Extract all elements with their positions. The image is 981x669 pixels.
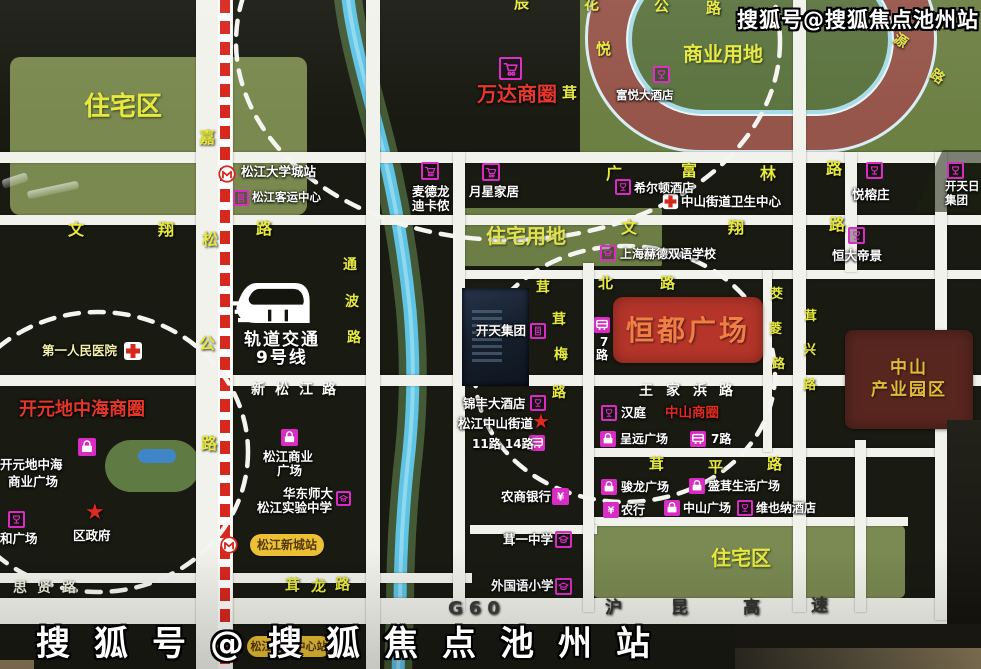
road-label-rongmei-road-1: 茸 xyxy=(552,313,566,327)
road-label-xinsongjiang-road-0: 新 xyxy=(251,383,265,397)
zone-label-residential-bottom: 住宅区 xyxy=(711,548,771,568)
poi-label-metro-decathlon-line1: 迪卡侬 xyxy=(412,200,450,213)
poi-label-rural-commercial-bank: 农商银行 xyxy=(501,491,551,504)
poi-label-bus-route-7-chengyuan: 7路 xyxy=(711,433,731,445)
road-label-jiasong-highway-2: 公 xyxy=(199,336,215,352)
poi-label-songjiang-university-town-station: 松江大学城站 xyxy=(241,166,316,179)
road-label-chenhua-highway-0: 辰 xyxy=(514,0,529,11)
svg-text:¥: ¥ xyxy=(608,506,615,517)
project-label-zhongshan-industrial-park-line0: 中山 xyxy=(890,358,928,379)
poi-bus-route-7-hengdu-bus-icon xyxy=(594,317,610,333)
road-label-jiasong-highway-3: 路 xyxy=(201,436,217,452)
road-horizontal-4 xyxy=(583,448,981,457)
poi-label-zhongshan-street-health-center: 中山街道卫生中心 xyxy=(681,196,781,209)
poi-label-songjiang-bus-terminal: 松江客运中心 xyxy=(252,192,321,204)
road-label-ronglong-road-0: 茸 xyxy=(285,578,300,593)
road-label-rongxing-road-2: 路 xyxy=(803,379,816,392)
road-label-jiasong-highway-0: 嘉 xyxy=(199,130,215,146)
road-label-rongxing-road-0: 茸 xyxy=(804,310,817,323)
poi-district-government-star-icon: ★ xyxy=(85,502,105,524)
poi-label-jinfeng-hotel: 锦丰大酒店 xyxy=(463,398,526,411)
poi-zhongshan-street-health-center-red-cross-icon xyxy=(662,193,679,210)
watermark-top-right: 搜狐号@搜狐焦点池州站 xyxy=(737,10,979,31)
poi-label-songjiang-commercial-plaza: 松江商业 xyxy=(263,451,313,464)
poi-label-first-peoples-hospital: 第一人民医院 xyxy=(42,345,117,358)
road-label-guangfulin-road-3: 路 xyxy=(826,161,842,177)
station-pill-songjiang-xincheng-station: 松江新城站 xyxy=(250,534,324,556)
road-label-jiaoling-road-2: 路 xyxy=(772,358,785,371)
poi-label-kaiyuan-commercial-plaza-line1: 商业广场 xyxy=(8,476,58,489)
poi-label-foreign-language-primary-school: 外国语小学 xyxy=(491,580,554,593)
road-label-tongbo-road-0: 通 xyxy=(343,258,357,272)
road-label-rongmei-road-3: 路 xyxy=(552,386,566,400)
road-label-wenxiang-road-west-0: 文 xyxy=(68,222,84,238)
poi-label-songjiang-commercial-plaza-line1: 广场 xyxy=(277,465,302,478)
road-label-guangfulin-road-2: 林 xyxy=(760,166,776,182)
road-label-tongbo-road-2: 路 xyxy=(347,331,361,345)
poi-label-bus-route-7-hengdu-line1: 路 xyxy=(596,349,608,361)
road-label-chenhua-highway-2: 公 xyxy=(654,0,669,14)
road-label-xinsongjiang-road-3: 路 xyxy=(322,383,336,397)
poi-hengda-dijing-cup-icon xyxy=(848,227,865,244)
road-label-hukun-expressway-3: 速 xyxy=(811,598,828,615)
road-label-chenhua-highway-3: 路 xyxy=(706,1,721,16)
kaitian-photo-detail xyxy=(472,310,502,366)
poi-bus-route-7-chengyuan-bus-icon xyxy=(690,431,706,447)
train-icon xyxy=(231,278,315,328)
zone-pond-lake xyxy=(138,449,176,463)
road-label-rongyue-road-1: 茸 xyxy=(562,86,577,101)
poi-wanda-business-circle-cart-icon xyxy=(499,57,522,80)
rail-line9-label-line2: 9号线 xyxy=(256,350,308,367)
poi-label-rongyi-middle-school: 茸一中学 xyxy=(503,534,553,547)
songjiang-location-map: 搜狐号@搜狐焦点池州站 搜狐号@搜狐焦点池州站 住宅区住宅区住宅用地住宅区商业用… xyxy=(0,0,981,669)
road-label-wangjiabang-road-0: 王 xyxy=(639,384,653,398)
road-vertical-7 xyxy=(855,440,866,612)
road-label-xinsongjiang-road-2: 江 xyxy=(299,383,313,397)
poi-kaitianri-group-cup-icon xyxy=(947,162,964,179)
road-label-wenxiang-road-west-1: 翔 xyxy=(158,222,174,238)
road-label-rongmei-road-2: 梅 xyxy=(554,348,568,362)
project-zhongshan-industrial-park: 中山产业园区 xyxy=(845,330,973,429)
poi-hilton-hotel-cup-icon xyxy=(615,179,631,195)
poi-label-hengda-dijing: 恒大帝景 xyxy=(832,250,882,263)
poi-fuyue-hotel-cup-icon xyxy=(653,66,670,83)
poi-zhongshan-plaza-bag-icon xyxy=(664,500,680,516)
poi-label-junlong-plaza: 骏龙广场 xyxy=(621,481,669,493)
poi-label-zhongshan-business-circle-label: 中山商圈 xyxy=(665,407,719,421)
poi-metro-decathlon-cart-icon xyxy=(421,162,439,180)
poi-chengyuan-plaza-bag-icon xyxy=(600,431,616,447)
dark-strip-bottom-right xyxy=(735,624,981,650)
poi-kaiyuan-commercial-plaza-bag-icon xyxy=(78,438,96,456)
poi-label-zhongshan-plaza: 中山广场 xyxy=(683,502,731,514)
poi-kaitian-group-building-icon xyxy=(530,323,546,339)
poi-hanting-hotel-cup-icon xyxy=(601,405,617,421)
road-label-xinsongjiang-road-1: 松 xyxy=(275,383,289,397)
poi-label-kaitian-group: 开天集团 xyxy=(476,325,526,338)
poi-zhongshan-street-office-star-icon: ★ xyxy=(532,411,550,431)
poi-label-yuexing-home: 月星家居 xyxy=(469,186,519,199)
road-label-wenxiang-road-east-1: 翔 xyxy=(728,220,744,236)
poi-label-hanting-hotel: 汉庭 xyxy=(621,407,646,420)
road-label-wangjiabang-road-1: 家 xyxy=(666,384,680,398)
poi-label-ecnu-songjiang-experimental-school: 华东师大 xyxy=(283,488,333,501)
road-label-hukun-expressway-1: 昆 xyxy=(671,600,688,617)
road-vertical-4 xyxy=(793,0,806,612)
road-label-sixian-road-1: 贤 xyxy=(37,581,51,595)
road-vertical-3 xyxy=(583,263,594,612)
poi-label-kaiyuan-commercial-plaza: 开元地中海 xyxy=(0,459,63,472)
road-label-wenxiang-road-east-0: 文 xyxy=(621,220,637,236)
road-label-wenxiang-road-west-2: 路 xyxy=(256,221,272,237)
poi-label-banyan-tree-hotel: 悦榕庄 xyxy=(852,189,890,202)
poi-vienna-hotel-cup-icon xyxy=(737,500,753,516)
zone-label-residential-land: 住宅用地 xyxy=(486,226,566,246)
road-label-wenxiang-road-east-2: 路 xyxy=(829,217,845,233)
road-vertical-1 xyxy=(366,0,380,669)
road-label-jiasong-highway-1: 松 xyxy=(202,232,218,248)
svg-text:¥: ¥ xyxy=(557,492,564,503)
road-label-guangfulin-road-1: 富 xyxy=(681,163,697,179)
road-label-sixian-road-0: 思 xyxy=(13,581,27,595)
road-label-rongping-road-1: 平 xyxy=(708,460,723,475)
road-label-north-road-1: 路 xyxy=(660,276,675,291)
poi-abc-bank-bank-icon: ¥ xyxy=(603,502,619,518)
poi-first-peoples-hospital-red-cross-icon xyxy=(123,341,143,361)
road-label-rongyue-road-0: 悦 xyxy=(596,42,611,57)
road-label-rongping-road-0: 茸 xyxy=(649,457,664,472)
road-label-rongmei-road-0: 茸 xyxy=(536,281,550,295)
poi-label-kaitianri-group: 开天日 xyxy=(945,181,980,193)
watermark-bottom-left: 搜狐号@搜狐焦点池州站 xyxy=(36,627,674,661)
poi-label-zhongshan-street-office: 松江中山街道 xyxy=(458,418,533,431)
poi-songjiang-bus-terminal-building-icon xyxy=(233,190,249,206)
road-label-sixian-road-2: 路 xyxy=(62,581,76,595)
poi-label-hilton-hotel: 希尔顿酒店 xyxy=(634,182,694,194)
zone-label-commercial-land: 商业用地 xyxy=(683,44,763,64)
station-songjiang-xincheng-station-metro-icon xyxy=(220,536,238,554)
floor-bottom-right xyxy=(735,648,981,669)
poi-label-wanda-business-circle: 万达商圈 xyxy=(477,84,557,104)
poi-rongyi-middle-school-school-icon xyxy=(555,531,572,548)
poi-label-kaitianri-group-line1: 集团 xyxy=(945,195,968,207)
metro-line-9 xyxy=(220,0,230,669)
poi-he-plaza-cup-icon xyxy=(8,511,25,528)
poi-label-shengrong-life-plaza: 盛茸生活广场 xyxy=(708,480,780,492)
poi-hede-bilingual-school-school-icon xyxy=(600,245,616,261)
road-label-hukun-expressway-2: 高 xyxy=(743,600,760,617)
road-label-ronglong-road-2: 路 xyxy=(335,577,350,592)
poi-label-bus-route-7-hengdu: 7 xyxy=(600,336,608,348)
road-label-north-road-0: 北 xyxy=(598,276,613,291)
road-label-g60-code-0: G60 xyxy=(448,600,506,618)
road-label-jiaoling-road-0: 茭 xyxy=(770,288,783,301)
poi-label-metro-decathlon: 麦德龙 xyxy=(412,186,450,199)
poi-ecnu-songjiang-experimental-school-school-icon xyxy=(336,491,351,506)
poi-label-abc-bank: 农行 xyxy=(621,504,645,516)
rail-line9-label-line1: 轨道交通 xyxy=(244,332,320,349)
road-label-chenhua-highway-1: 花 xyxy=(584,0,599,12)
poi-foreign-language-primary-school-school-icon xyxy=(555,578,572,595)
poi-label-district-government: 区政府 xyxy=(73,530,111,543)
road-vertical-9 xyxy=(935,428,947,620)
road-label-rongxing-road-1: 兴 xyxy=(803,344,816,357)
poi-rural-commercial-bank-bank-icon: ¥ xyxy=(552,488,569,505)
road-label-wangjiabang-road-3: 路 xyxy=(719,384,733,398)
road-label-wangjiabang-road-2: 浜 xyxy=(693,384,707,398)
floor-bottom-left xyxy=(0,660,34,669)
poi-yuexing-home-cart-icon xyxy=(482,163,500,181)
glass-reflection-right xyxy=(947,420,981,625)
poi-songjiang-commercial-plaza-bag-icon xyxy=(281,429,298,446)
road-label-jiaoling-road-1: 菱 xyxy=(769,323,782,336)
poi-shengrong-life-plaza-bag-icon xyxy=(689,478,705,494)
poi-label-chengyuan-plaza: 呈远广场 xyxy=(620,433,668,445)
zone-label-residential-top-left: 住宅区 xyxy=(84,94,162,120)
road-label-ronglong-road-1: 龙 xyxy=(311,579,326,594)
poi-banyan-tree-hotel-cup-icon xyxy=(866,162,883,179)
road-label-hukun-expressway-0: 沪 xyxy=(605,600,622,617)
project-label-hengdu-plaza-line0: 恒都广场 xyxy=(626,313,750,348)
road-horizontal-2 xyxy=(455,270,981,279)
zone-pond xyxy=(105,440,200,492)
project-hengdu-plaza: 恒都广场 xyxy=(613,297,763,363)
poi-junlong-plaza-bag-icon xyxy=(601,479,617,495)
poi-label-hede-bilingual-school: 上海赫德双语学校 xyxy=(620,248,716,260)
road-label-tongbo-road-1: 波 xyxy=(345,295,359,309)
poi-label-ecnu-songjiang-experimental-school-line1: 松江实验中学 xyxy=(257,502,332,515)
project-label-zhongshan-industrial-park-line1: 产业园区 xyxy=(871,380,947,401)
poi-label-kaiyuan-business-circle-label: 开元地中海商圈 xyxy=(19,401,145,419)
poi-label-fuyue-hotel: 富悦大酒店 xyxy=(616,90,674,102)
poi-label-vienna-hotel: 维也纳酒店 xyxy=(756,502,816,514)
poi-label-he-plaza: 和广场 xyxy=(0,533,38,546)
poi-label-bus-route-11-14: 11路 14路 xyxy=(472,438,534,450)
road-label-rongping-road-2: 路 xyxy=(767,457,782,472)
poi-songjiang-university-town-station-metro-icon xyxy=(218,165,236,183)
